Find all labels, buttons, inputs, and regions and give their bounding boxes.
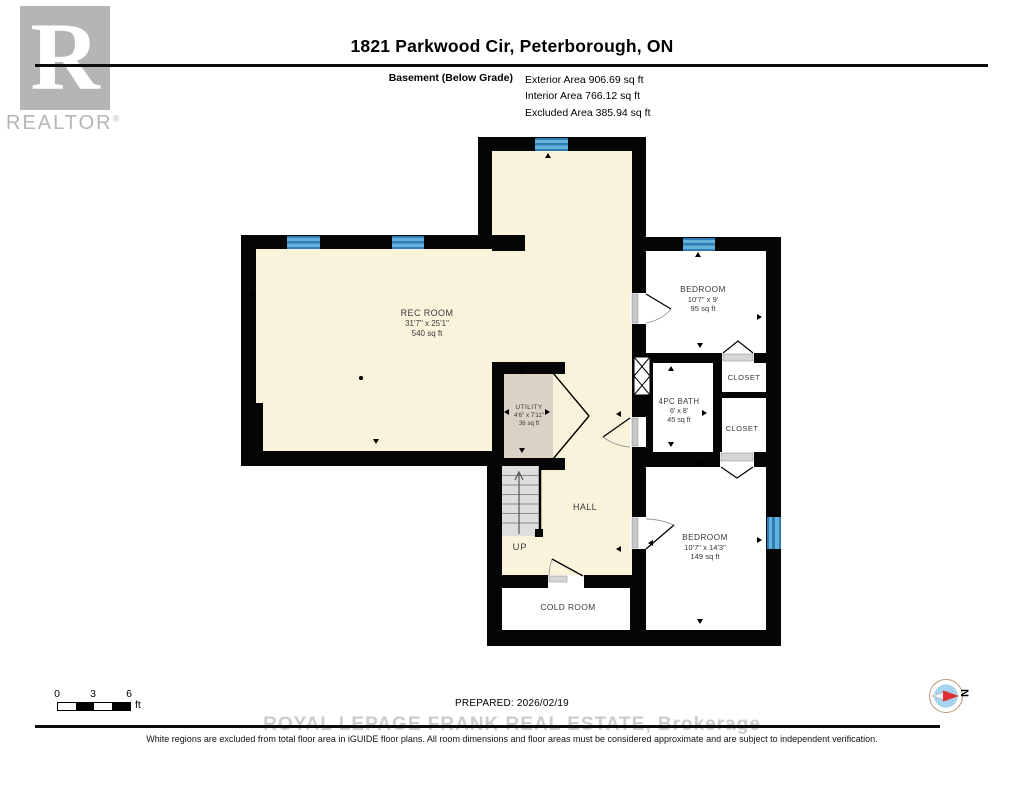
window-icon xyxy=(287,236,320,249)
dimension-arrow xyxy=(519,367,525,372)
room-name: BEDROOM xyxy=(655,533,755,543)
room-dims: 10'7" x 9' xyxy=(653,295,753,305)
room-label-rec-room: REC ROOM 31'7" x 25'1" 540 sq ft xyxy=(367,309,487,338)
floorplan-page: R REALTOR® 1821 Parkwood Cir, Peterborou… xyxy=(0,0,1024,791)
room-name: BEDROOM xyxy=(653,285,753,295)
dimension-arrow xyxy=(373,439,379,444)
room-area-text: 45 sq ft xyxy=(647,416,711,425)
dimension-arrow xyxy=(697,619,703,624)
dimension-arrow xyxy=(545,153,551,158)
room-label-bath: 4PC BATH 6' x 8' 45 sq ft xyxy=(647,398,711,424)
room-name: UP xyxy=(502,543,538,553)
stairs-icon xyxy=(502,466,544,540)
compass-north-label: N xyxy=(958,689,970,697)
room-name: REC ROOM xyxy=(367,309,487,319)
dimension-arrow xyxy=(699,460,705,465)
dimension-arrow xyxy=(695,252,701,257)
dimension-arrow xyxy=(697,343,703,348)
dimension-arrow xyxy=(519,448,525,453)
room-name: COLD ROOM xyxy=(518,603,618,613)
door-bifold-closet2-icon xyxy=(716,450,760,480)
room-label-closet1: CLOSET xyxy=(714,373,774,383)
door-swing-bath-icon xyxy=(595,412,649,452)
window-icon xyxy=(767,517,781,549)
room-label-closet2: CLOSET xyxy=(712,424,772,434)
room-area-text: 95 sq ft xyxy=(653,304,753,314)
room-label-bedroom1: BEDROOM 10'7" x 9' 95 sq ft xyxy=(653,285,753,314)
room-label-bedroom2: BEDROOM 10'7" x 14'3" 149 sq ft xyxy=(655,533,755,562)
wall-stub xyxy=(492,235,525,251)
duct-chase-icon xyxy=(633,356,651,396)
disclaimer-text: White regions are excluded from total fl… xyxy=(0,734,1024,744)
door-bifold-closet1-icon xyxy=(718,340,760,366)
room-area-text: 36 sq ft xyxy=(498,420,560,428)
dimension-arrow xyxy=(757,537,762,543)
dimension-arrow xyxy=(757,314,762,320)
dimension-arrow xyxy=(616,546,621,552)
dimension-arrow xyxy=(249,291,254,297)
floor-plan: REC ROOM 31'7" x 25'1" 540 sq ft UTILITY… xyxy=(0,0,1024,791)
room-name: HALL xyxy=(555,503,615,513)
window-icon xyxy=(683,238,715,251)
room-label-hall: HALL xyxy=(555,503,615,513)
room-label-utility: UTILITY 4'6" x 7'11" 36 sq ft xyxy=(498,404,560,427)
dimension-arrow xyxy=(648,540,653,546)
room-area-text: 540 sq ft xyxy=(367,329,487,339)
room-name: CLOSET xyxy=(714,373,774,383)
stairs-up-label: UP xyxy=(502,543,538,553)
footer-divider xyxy=(35,725,940,728)
room-dims: 4'6" x 7'11" xyxy=(498,412,560,420)
wall-notch xyxy=(241,403,263,466)
window-icon xyxy=(392,236,424,249)
dimension-arrow xyxy=(616,411,621,417)
room-name: CLOSET xyxy=(712,424,772,434)
room-dims: 10'7" x 14'3" xyxy=(655,543,755,553)
room-dims: 31'7" x 25'1" xyxy=(367,319,487,329)
room-label-cold-room: COLD ROOM xyxy=(518,603,618,613)
room-area-text: 149 sq ft xyxy=(655,552,755,562)
dimension-arrow xyxy=(668,442,674,447)
door-swing-cold-room-icon xyxy=(540,556,590,592)
dimension-arrow xyxy=(668,366,674,371)
window-icon xyxy=(535,138,568,151)
floor-dot xyxy=(359,376,363,380)
room-name: UTILITY xyxy=(498,404,560,412)
prepared-date: PREPARED: 2026/02/19 xyxy=(0,698,1024,709)
